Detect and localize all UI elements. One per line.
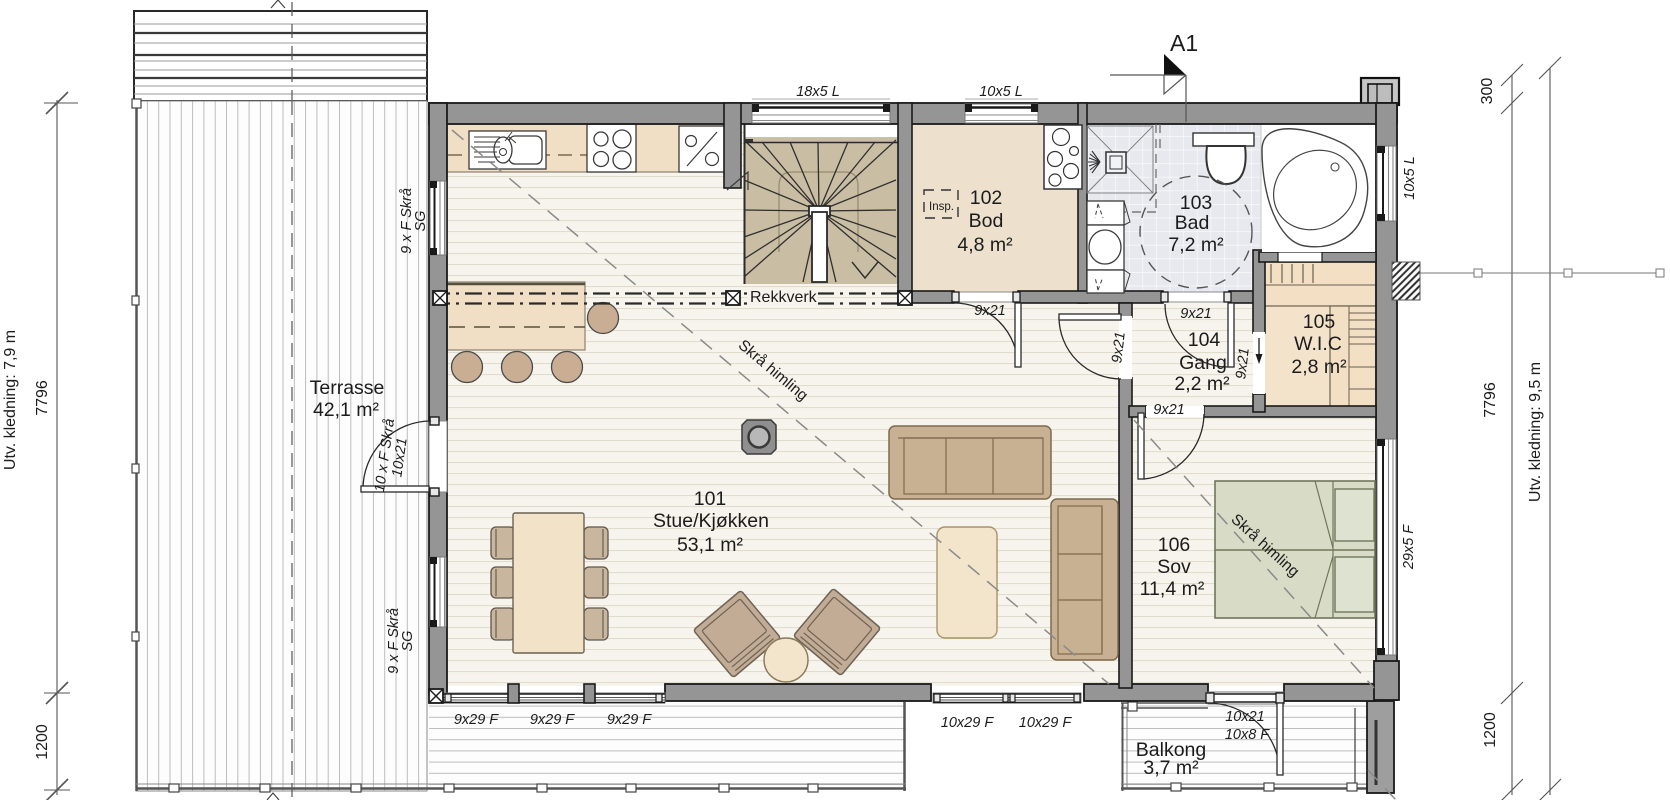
svg-text:Rekkverk: Rekkverk [750,289,818,306]
svg-text:Stue/Kjøkken: Stue/Kjøkken [653,510,769,532]
svg-text:Utv. kledning: 7,9 m: Utv. kledning: 7,9 m [2,330,19,470]
svg-text:18x5 L: 18x5 L [796,84,840,100]
svg-text:Bod: Bod [969,210,1004,232]
svg-text:9x29 F: 9x29 F [530,712,575,728]
svg-text:10x29 F: 10x29 F [941,715,995,731]
svg-text:10x21: 10x21 [1225,709,1265,725]
svg-text:10x5 L: 10x5 L [1402,156,1418,200]
svg-text:9x29 F: 9x29 F [454,712,499,728]
svg-text:101: 101 [694,488,727,510]
svg-text:42,1 m²: 42,1 m² [313,399,380,421]
svg-text:W.I.C: W.I.C [1294,333,1342,355]
svg-text:7796: 7796 [34,380,51,416]
svg-text:2,2 m²: 2,2 m² [1174,373,1230,395]
svg-text:104: 104 [1188,329,1221,351]
svg-text:Terrasse: Terrasse [310,377,385,399]
svg-text:7,2 m²: 7,2 m² [1168,234,1224,256]
svg-text:SG: SG [400,631,416,652]
svg-text:Bad: Bad [1175,212,1210,234]
svg-text:103: 103 [1180,192,1213,214]
svg-text:10x8 F: 10x8 F [1225,727,1270,743]
svg-text:9x21: 9x21 [1153,402,1184,418]
svg-text:1200: 1200 [1482,712,1499,748]
svg-text:Utv. kledning: 9,5 m: Utv. kledning: 9,5 m [1527,362,1544,502]
svg-text:11,4 m²: 11,4 m² [1140,578,1205,600]
svg-text:9x21: 9x21 [974,303,1005,319]
svg-text:105: 105 [1303,311,1336,333]
svg-text:9x21: 9x21 [1180,306,1211,322]
svg-text:106: 106 [1158,534,1191,556]
svg-text:4,8 m²: 4,8 m² [957,234,1013,256]
svg-text:10x29 F: 10x29 F [1019,715,1073,731]
svg-text:10x5 L: 10x5 L [979,84,1023,100]
svg-text:3,7 m²: 3,7 m² [1143,757,1199,779]
svg-text:Gang: Gang [1179,352,1227,374]
svg-text:29x5 F: 29x5 F [1401,524,1417,570]
svg-text:1200: 1200 [34,724,51,760]
svg-text:Insp.: Insp. [929,201,954,213]
svg-text:102: 102 [970,187,1003,209]
svg-text:300: 300 [1479,78,1496,105]
svg-text:Sov: Sov [1157,556,1191,578]
svg-text:7796: 7796 [1482,382,1499,418]
svg-text:2,8 m²: 2,8 m² [1291,356,1347,378]
svg-text:53,1 m²: 53,1 m² [677,534,744,556]
svg-text:9x29 F: 9x29 F [607,712,652,728]
svg-text:SG: SG [413,211,429,232]
svg-text:A1: A1 [1170,30,1198,56]
